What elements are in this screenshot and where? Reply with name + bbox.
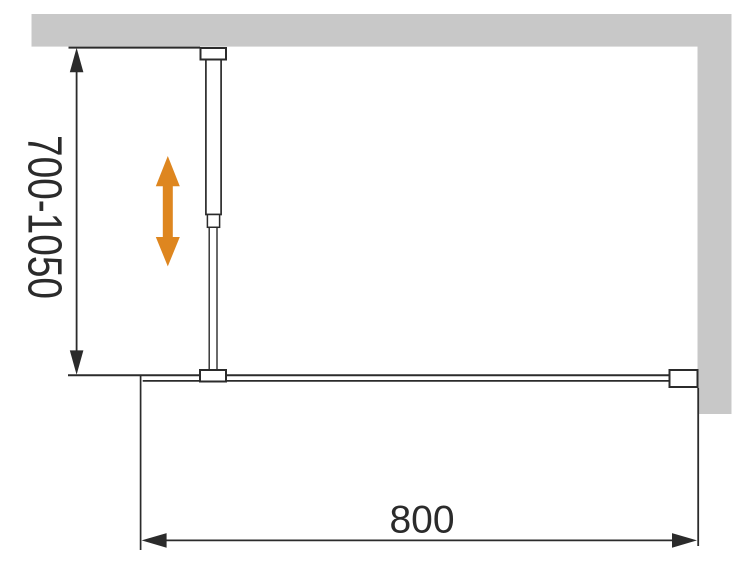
svg-text:700-1050: 700-1050 xyxy=(17,135,70,299)
svg-text:800: 800 xyxy=(389,499,454,542)
